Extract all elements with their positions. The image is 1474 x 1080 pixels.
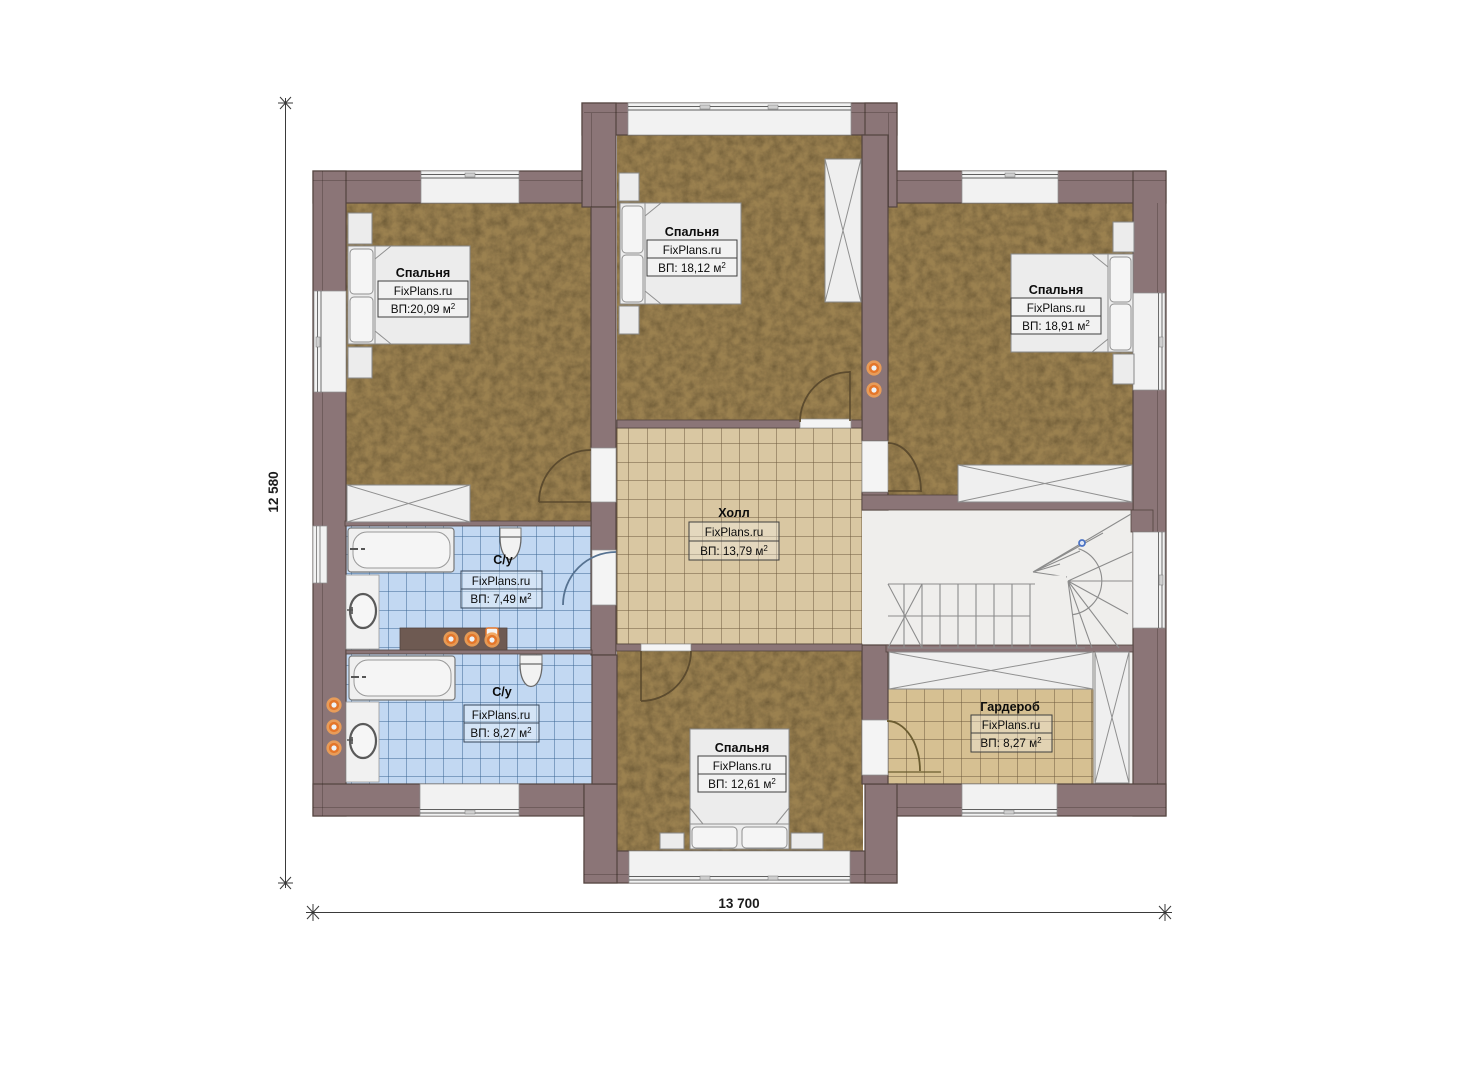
svg-text:13 700: 13 700 xyxy=(718,896,759,911)
svg-text:FixPlans.ru: FixPlans.ru xyxy=(472,709,530,722)
svg-text:ВП: 18,12 м2: ВП: 18,12 м2 xyxy=(658,261,726,275)
svg-text:FixPlans.ru: FixPlans.ru xyxy=(394,285,452,298)
svg-text:FixPlans.ru: FixPlans.ru xyxy=(713,760,771,773)
svg-text:Спальня: Спальня xyxy=(396,266,450,280)
svg-text:FixPlans.ru: FixPlans.ru xyxy=(982,719,1040,732)
svg-text:ВП: 12,61 м2: ВП: 12,61 м2 xyxy=(708,777,776,791)
svg-text:Гардероб: Гардероб xyxy=(980,700,1040,714)
svg-text:ВП: 13,79 м2: ВП: 13,79 м2 xyxy=(700,544,768,558)
svg-text:Спальня: Спальня xyxy=(665,225,719,239)
svg-text:ВП: 8,27 м2: ВП: 8,27 м2 xyxy=(980,736,1042,750)
svg-text:ВП: 8,27 м2: ВП: 8,27 м2 xyxy=(470,726,532,740)
svg-text:С/у: С/у xyxy=(492,685,512,699)
svg-text:FixPlans.ru: FixPlans.ru xyxy=(1027,302,1085,315)
svg-text:FixPlans.ru: FixPlans.ru xyxy=(705,526,763,539)
svg-text:С/у: С/у xyxy=(493,553,513,567)
svg-text:12 580: 12 580 xyxy=(266,471,281,512)
svg-text:FixPlans.ru: FixPlans.ru xyxy=(472,575,530,588)
svg-text:Холл: Холл xyxy=(718,506,750,520)
svg-text:ВП: 7,49 м2: ВП: 7,49 м2 xyxy=(470,592,532,606)
svg-text:Спальня: Спальня xyxy=(1029,283,1083,297)
svg-text:Спальня: Спальня xyxy=(715,741,769,755)
svg-text:FixPlans.ru: FixPlans.ru xyxy=(663,244,721,257)
svg-text:ВП: 18,91 м2: ВП: 18,91 м2 xyxy=(1022,319,1090,333)
svg-text:ВП:20,09 м2: ВП:20,09 м2 xyxy=(391,302,456,316)
